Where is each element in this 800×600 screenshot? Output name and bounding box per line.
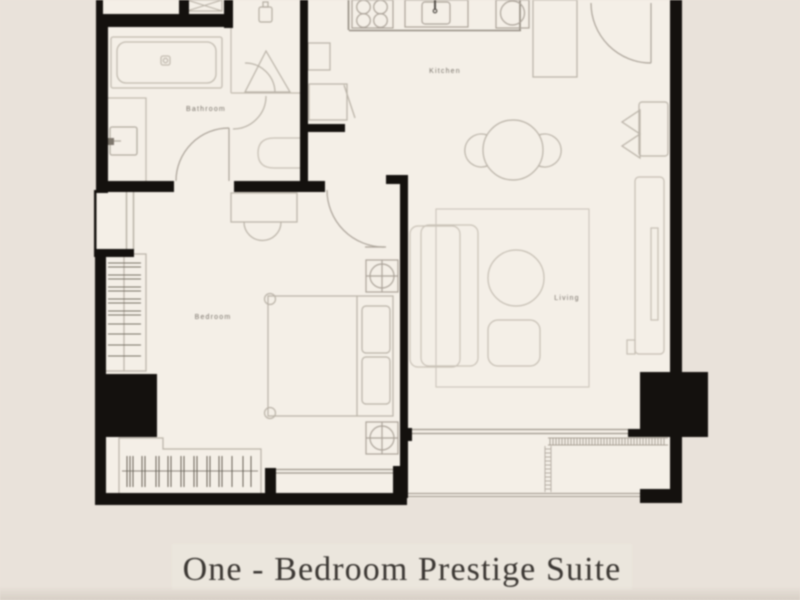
svg-text:One - Bedroom Prestige Suite: One - Bedroom Prestige Suite [183, 551, 622, 588]
svg-text:Living: Living [554, 295, 580, 302]
svg-text:Bathroom: Bathroom [186, 106, 226, 113]
svg-text:Kitchen: Kitchen [429, 68, 461, 75]
svg-text:Bedroom: Bedroom [195, 314, 232, 321]
